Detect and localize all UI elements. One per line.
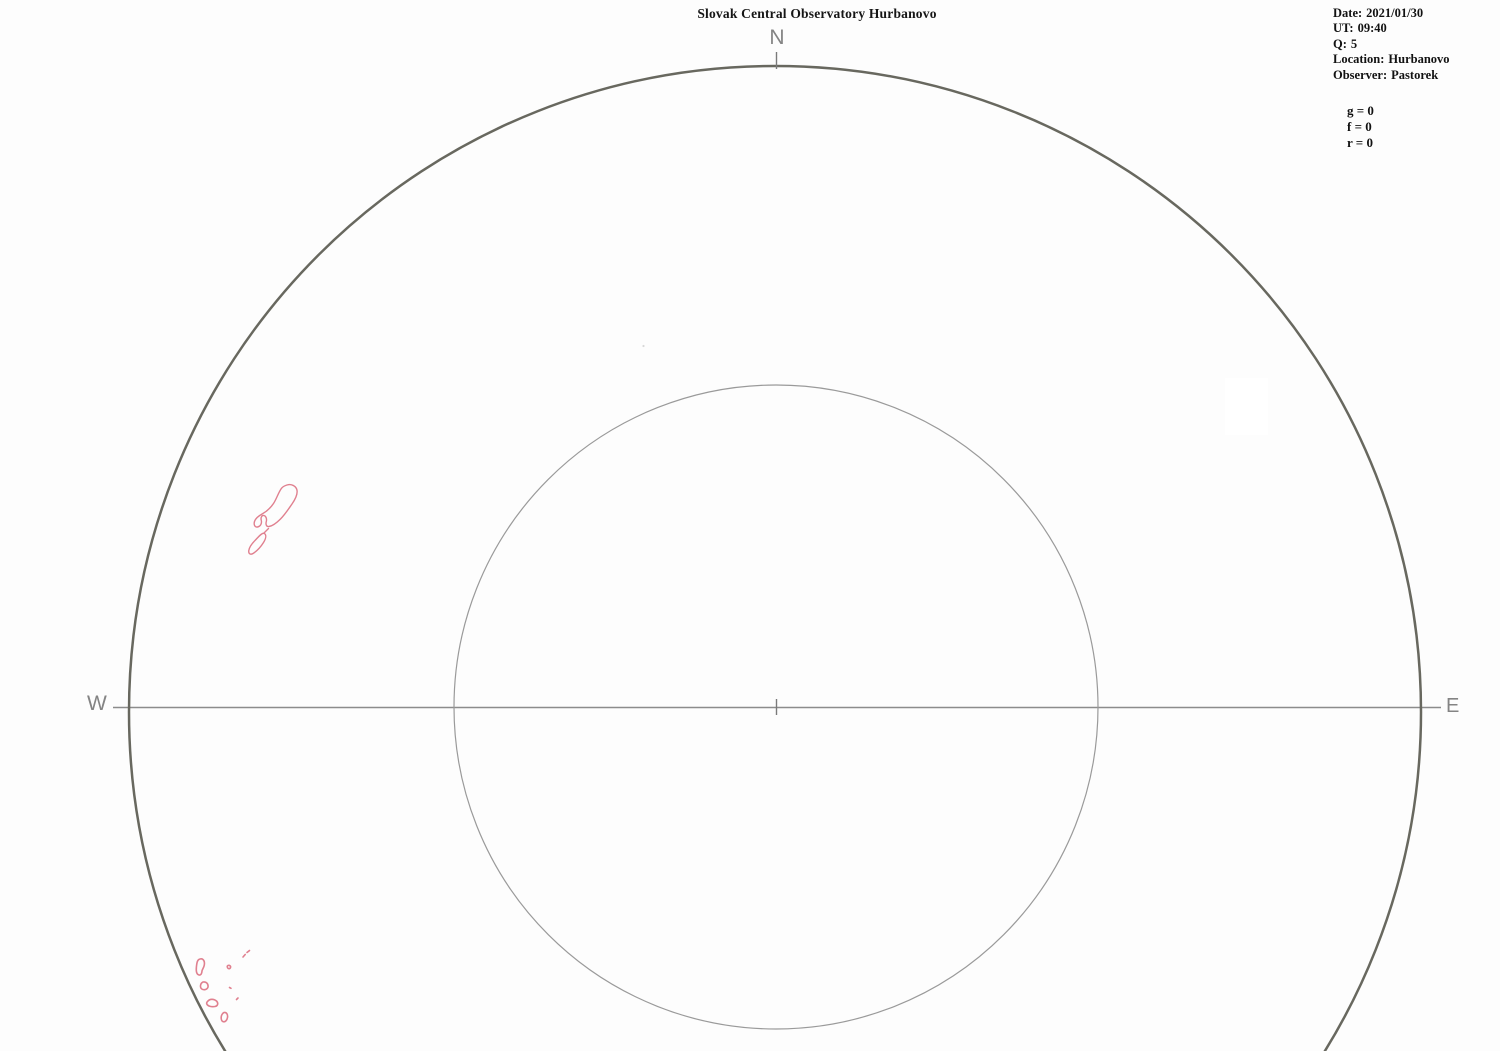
solar-disk-circle <box>129 66 1421 1051</box>
scan-artifact-patch <box>1225 378 1268 435</box>
faculae-ring <box>196 959 204 975</box>
count-spots-f: f = 0 <box>1347 119 1374 135</box>
faculae-blob-4 <box>221 1012 227 1021</box>
scan-speck <box>642 345 644 347</box>
faculae-dot-1 <box>227 965 230 968</box>
meta-date-value: 2021/01/30 <box>1366 6 1423 20</box>
observatory-title: Slovak Central Observatory Hurbanovo <box>697 6 936 22</box>
meta-quality: Q:5 <box>1333 37 1450 52</box>
compass-west-label: W <box>87 692 107 716</box>
meta-observer: Observer:Pastorek <box>1333 68 1450 83</box>
meta-quality-value: 5 <box>1351 37 1357 51</box>
faculae-blob-2 <box>200 982 208 990</box>
faculae-speck-1 <box>243 955 245 958</box>
meta-observer-label: Observer: <box>1333 68 1387 82</box>
compass-east-label: E <box>1446 695 1459 718</box>
sunspot-counts: g = 0 f = 0 r = 0 <box>1347 103 1374 151</box>
faculae-outline-hook <box>264 529 269 534</box>
solar-disk-drawing <box>0 0 1500 1051</box>
meta-date-label: Date: <box>1333 6 1362 20</box>
meta-ut: UT:09:40 <box>1333 21 1450 36</box>
faculae-outline-small <box>249 533 266 554</box>
meta-observer-value: Pastorek <box>1391 68 1438 82</box>
faculae-speck-2 <box>247 951 250 953</box>
count-wolf-r: r = 0 <box>1347 135 1374 151</box>
sunspot-drawing-sheet: Slovak Central Observatory Hurbanovo N W… <box>0 0 1500 1051</box>
meta-ut-value: 09:40 <box>1358 21 1387 35</box>
compass-north-label: N <box>769 26 784 50</box>
meta-date: Date:2021/01/30 <box>1333 6 1450 21</box>
meta-location-label: Location: <box>1333 52 1384 66</box>
faculae-blob-3 <box>207 999 218 1006</box>
count-groups-g: g = 0 <box>1347 103 1374 119</box>
faculae-speck-4 <box>237 998 239 1000</box>
meta-location: Location:Hurbanovo <box>1333 52 1450 67</box>
faculae-cluster-southwest <box>196 951 249 1022</box>
faculae-region-west <box>249 485 297 555</box>
faculae-speck-3 <box>230 988 232 989</box>
meta-location-value: Hurbanovo <box>1388 52 1449 66</box>
meta-quality-label: Q: <box>1333 37 1347 51</box>
meta-ut-label: UT: <box>1333 21 1354 35</box>
faculae-outline-large <box>254 485 297 527</box>
observation-metadata: Date:2021/01/30 UT:09:40 Q:5 Location:Hu… <box>1333 6 1450 83</box>
